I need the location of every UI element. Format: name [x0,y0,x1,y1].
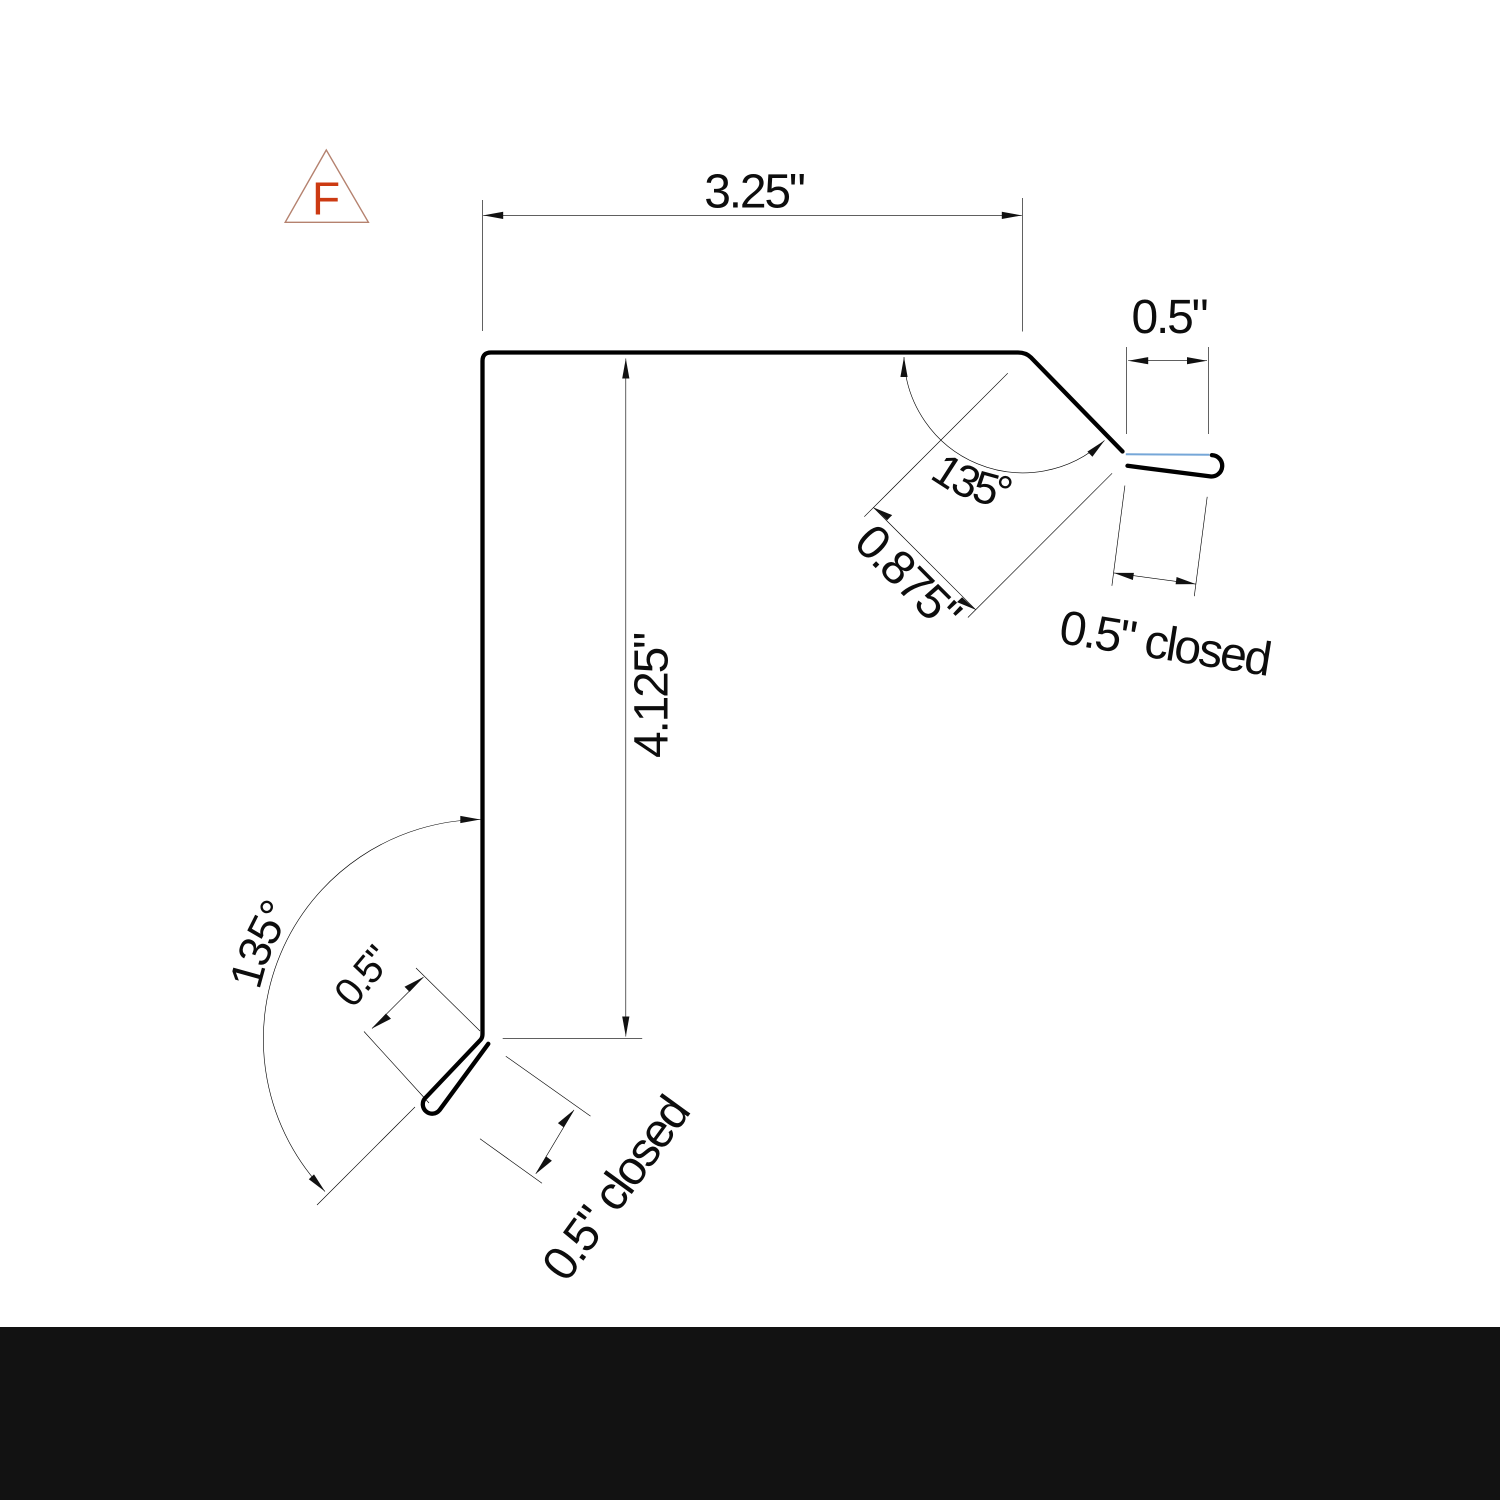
svg-text:0.5": 0.5" [1132,291,1207,344]
svg-text:F: F [312,173,340,225]
svg-text:4.125": 4.125" [626,634,679,758]
svg-text:3.25": 3.25" [704,166,804,219]
